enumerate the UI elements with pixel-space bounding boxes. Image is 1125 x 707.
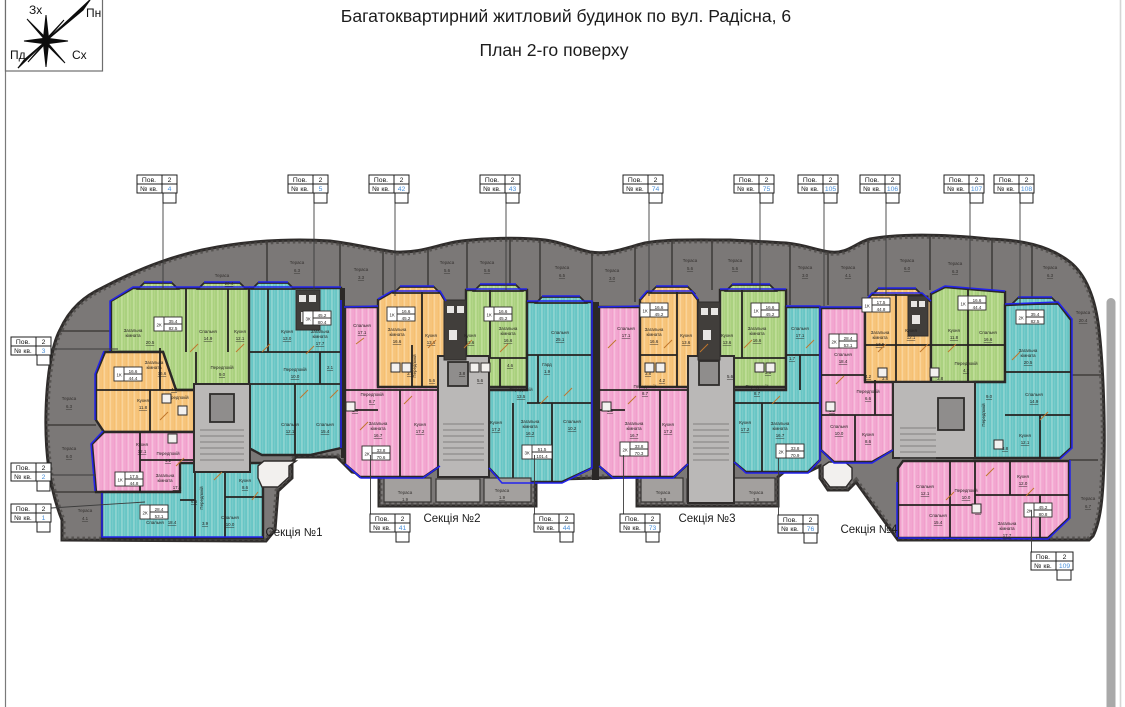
svg-text:16.2: 16.2 [526, 431, 535, 436]
svg-text:11.8: 11.8 [950, 335, 959, 340]
svg-text:8.6: 8.6 [865, 439, 872, 444]
svg-text:12.1: 12.1 [286, 429, 295, 434]
svg-text:№ кв.: № кв. [863, 186, 881, 193]
svg-text:Спальня: Спальня [563, 419, 581, 424]
svg-text:Пов.: Пов. [625, 516, 639, 523]
svg-text:кімната: кімната [389, 332, 405, 337]
svg-text:Секція №1: Секція №1 [265, 527, 322, 539]
svg-text:2К: 2К [156, 323, 162, 328]
svg-text:17.7: 17.7 [316, 341, 325, 346]
svg-text:№ кв.: № кв. [1034, 563, 1052, 570]
svg-text:Тераса: Тераса [683, 258, 698, 263]
svg-text:16.7: 16.7 [630, 433, 639, 438]
svg-text:кімната: кімната [370, 426, 386, 431]
svg-text:Тераса: Тераса [798, 265, 813, 270]
svg-text:Кухня: Кухня [948, 328, 960, 333]
svg-text:3.3: 3.3 [358, 275, 365, 280]
svg-text:2: 2 [511, 177, 515, 184]
svg-text:Спальня: Спальня [979, 330, 997, 335]
svg-text:Передпокій: Передпокій [633, 384, 657, 389]
svg-text:2: 2 [401, 516, 405, 523]
svg-text:Кухня: Кухня [281, 329, 293, 334]
svg-text:кімната: кімната [500, 331, 516, 336]
svg-text:Спальня: Спальня [353, 323, 371, 328]
svg-text:6.0: 6.0 [66, 454, 73, 459]
svg-text:109: 109 [1059, 563, 1071, 570]
svg-text:Пов.: Пов. [949, 177, 963, 184]
svg-text:кімната: кімната [312, 334, 328, 339]
svg-text:4.2: 4.2 [659, 378, 666, 383]
svg-text:80.4: 80.4 [318, 320, 327, 325]
svg-text:51.5: 51.5 [538, 447, 547, 452]
svg-text:кімната: кімната [749, 331, 765, 336]
svg-text:10.0: 10.0 [226, 522, 235, 527]
svg-text:Тераса: Тераса [1076, 310, 1091, 315]
svg-text:Тераса: Тераса [78, 508, 93, 513]
svg-text:1.9: 1.9 [402, 497, 409, 502]
svg-text:Тераса: Тераса [841, 265, 856, 270]
svg-text:1К: 1К [864, 304, 870, 309]
svg-text:№ кв.: № кв. [623, 525, 641, 532]
svg-text:16.6: 16.6 [753, 338, 762, 343]
svg-text:2: 2 [168, 177, 172, 184]
svg-text:Пов.: Пов. [539, 516, 553, 523]
svg-text:1К: 1К [389, 313, 395, 318]
svg-text:Передпокій: Передпокій [981, 403, 986, 427]
svg-text:16.6: 16.6 [402, 309, 411, 314]
svg-text:Кухня: Кухня [239, 478, 251, 483]
svg-text:16.6: 16.6 [650, 339, 659, 344]
svg-text:Пов.: Пов. [16, 465, 30, 472]
svg-text:Пн: Пн [86, 6, 101, 20]
svg-text:45.2: 45.2 [655, 312, 664, 317]
svg-text:№ кв.: № кв. [140, 186, 158, 193]
svg-text:2К: 2К [778, 450, 784, 455]
svg-text:17.5: 17.5 [877, 300, 886, 305]
svg-text:6.5: 6.5 [559, 273, 566, 278]
svg-text:Пд: Пд [10, 48, 26, 62]
svg-text:Секція №3: Секція №3 [678, 513, 735, 525]
svg-text:4.2: 4.2 [165, 458, 172, 463]
svg-text:5.6: 5.6 [477, 378, 484, 383]
svg-text:№ кв.: № кв. [14, 515, 32, 522]
svg-text:16.6: 16.6 [766, 305, 775, 310]
svg-text:кімната: кімната [157, 478, 173, 483]
svg-text:17.1: 17.1 [796, 333, 805, 338]
svg-text:Кухня: Кухня [662, 422, 674, 427]
svg-text:45.2: 45.2 [1039, 505, 1048, 510]
svg-text:№ кв.: № кв. [626, 186, 644, 193]
svg-text:42: 42 [398, 186, 406, 193]
svg-text:Передпокій: Передпокій [210, 365, 234, 370]
svg-text:Пов.: Пов. [1036, 554, 1050, 561]
svg-text:Кухня: Кухня [136, 442, 148, 447]
svg-text:28.4: 28.4 [844, 336, 853, 341]
svg-text:53.1: 53.1 [844, 343, 853, 348]
svg-text:Спальня: Спальня [830, 424, 848, 429]
svg-text:16.6: 16.6 [655, 305, 664, 310]
svg-text:Тераса: Тераса [215, 273, 230, 278]
svg-text:18.4: 18.4 [839, 359, 848, 364]
svg-text:Тераса: Тераса [749, 490, 764, 495]
svg-text:1К: 1К [486, 313, 492, 318]
svg-text:16.6: 16.6 [129, 369, 138, 374]
svg-text:3.9: 3.9 [202, 521, 209, 526]
svg-text:5.6: 5.6 [429, 378, 436, 383]
svg-text:Спальня: Спальня [199, 329, 217, 334]
svg-text:5.6: 5.6 [727, 374, 734, 379]
svg-text:кімната: кімната [626, 426, 642, 431]
svg-text:Спальня: Спальня [791, 326, 809, 331]
svg-text:Кухня: Кухня [490, 420, 502, 425]
svg-text:28.4: 28.4 [155, 507, 164, 512]
svg-text:Спальня: Спальня [281, 422, 299, 427]
svg-text:6.3: 6.3 [294, 268, 301, 273]
svg-text:№ кв.: № кв. [14, 474, 32, 481]
svg-text:20.4: 20.4 [225, 281, 234, 286]
svg-text:4: 4 [168, 186, 172, 193]
svg-text:74: 74 [652, 186, 660, 193]
svg-text:Пов.: Пов. [783, 517, 797, 524]
svg-text:108: 108 [1021, 186, 1033, 193]
svg-text:Пов.: Пов. [999, 177, 1013, 184]
svg-text:17.2: 17.2 [741, 427, 750, 432]
svg-text:6.3: 6.3 [952, 269, 959, 274]
svg-text:2: 2 [565, 516, 569, 523]
svg-text:82.5: 82.5 [169, 326, 178, 331]
svg-text:Пов.: Пов. [739, 177, 753, 184]
svg-text:15.4: 15.4 [321, 429, 330, 434]
svg-text:76: 76 [807, 526, 815, 533]
svg-text:2: 2 [891, 177, 895, 184]
svg-text:Кухня: Кухня [1017, 474, 1029, 479]
svg-text:5.6: 5.6 [687, 266, 694, 271]
svg-text:Тераса: Тераса [656, 490, 671, 495]
svg-text:Тераса: Тераса [440, 260, 455, 265]
svg-text:5.6: 5.6 [732, 266, 739, 271]
svg-text:44.4: 44.4 [973, 305, 982, 310]
svg-text:3.0: 3.0 [802, 273, 809, 278]
svg-text:11.8: 11.8 [139, 405, 148, 410]
svg-text:Кухня: Кухня [739, 420, 751, 425]
svg-text:Передпокій: Передпокій [509, 387, 533, 392]
svg-text:17.1: 17.1 [358, 330, 367, 335]
svg-text:Передпокій: Передпокій [283, 367, 307, 372]
svg-text:45.2: 45.2 [499, 316, 508, 321]
svg-text:кімната: кімната [999, 526, 1015, 531]
svg-text:Тераса: Тераса [605, 268, 620, 273]
svg-text:Пов.: Пов. [293, 177, 307, 184]
svg-text:70.3: 70.3 [635, 451, 644, 456]
svg-text:16.6: 16.6 [984, 337, 993, 342]
svg-text:6.6: 6.6 [865, 396, 872, 401]
svg-text:2: 2 [42, 339, 46, 346]
svg-text:Передпокій: Передпокій [856, 389, 880, 394]
svg-text:105: 105 [825, 186, 837, 193]
svg-text:Спальня: Спальня [316, 422, 334, 427]
svg-text:Спальня: Спальня [146, 520, 164, 525]
svg-text:5.6: 5.6 [484, 268, 491, 273]
svg-text:2: 2 [765, 177, 769, 184]
svg-text:44.4: 44.4 [129, 376, 138, 381]
svg-text:Тераса: Тераса [948, 261, 963, 266]
svg-text:1.9: 1.9 [660, 497, 667, 502]
svg-text:Сх: Сх [72, 48, 87, 62]
svg-text:13.6: 13.6 [723, 340, 732, 345]
svg-text:№ кв.: № кв. [291, 186, 309, 193]
svg-text:1К: 1К [116, 373, 122, 378]
svg-text:35.4: 35.4 [1031, 312, 1040, 317]
svg-text:Спальня: Спальня [221, 515, 239, 520]
svg-text:35.4: 35.4 [169, 319, 178, 324]
svg-text:3: 3 [42, 348, 46, 355]
svg-text:17.1: 17.1 [622, 333, 631, 338]
svg-text:Пов.: Пов. [16, 339, 30, 346]
svg-text:12.1: 12.1 [138, 449, 147, 454]
svg-text:12.0: 12.0 [1019, 481, 1028, 486]
svg-text:Спальня: Спальня [916, 484, 934, 489]
svg-text:2К: 2К [142, 511, 148, 516]
svg-text:Тераса: Тераса [480, 260, 495, 265]
svg-text:Пов.: Пов. [374, 177, 388, 184]
svg-text:Тераса: Тераса [555, 265, 570, 270]
svg-text:Пов.: Пов. [16, 506, 30, 513]
svg-text:План 2-го поверху: План 2-го поверху [479, 40, 628, 60]
svg-text:20.5: 20.5 [1024, 360, 1033, 365]
svg-text:6.7: 6.7 [1085, 504, 1092, 509]
svg-text:3.0: 3.0 [609, 276, 616, 281]
svg-text:Спальня: Спальня [617, 326, 635, 331]
svg-text:17.2: 17.2 [416, 429, 425, 434]
svg-text:20.4: 20.4 [1079, 318, 1088, 323]
svg-text:70.6: 70.6 [377, 455, 386, 460]
svg-text:Кухня: Кухня [234, 329, 246, 334]
svg-text:Секція №4: Секція №4 [840, 524, 898, 536]
svg-text:№ кв.: № кв. [537, 525, 555, 532]
svg-text:кімната: кімната [146, 365, 162, 370]
svg-text:44.8: 44.8 [877, 307, 886, 312]
svg-text:15.4: 15.4 [934, 520, 943, 525]
svg-text:4.1: 4.1 [845, 273, 852, 278]
svg-text:2: 2 [829, 177, 833, 184]
svg-text:Тераса: Тераса [728, 258, 743, 263]
svg-text:10.0: 10.0 [962, 495, 971, 500]
svg-text:16.7: 16.7 [374, 433, 383, 438]
svg-text:4.1: 4.1 [82, 516, 89, 521]
svg-text:Тераса: Тераса [1081, 496, 1096, 501]
svg-text:1К: 1К [642, 309, 648, 314]
svg-text:2К: 2К [1018, 316, 1024, 321]
svg-text:кімната: кімната [522, 424, 538, 429]
svg-text:Тераса: Тераса [900, 258, 915, 263]
svg-text:82.5: 82.5 [1031, 319, 1040, 324]
svg-text:Секція №2: Секція №2 [423, 513, 480, 525]
svg-text:5: 5 [319, 186, 323, 193]
svg-text:3.8: 3.8 [459, 371, 466, 376]
svg-text:Пов.: Пов. [485, 177, 499, 184]
svg-text:Тераса: Тераса [62, 446, 77, 451]
svg-text:Багатоквартирний житловий буди: Багатоквартирний житловий будинок по вул… [341, 6, 792, 26]
svg-text:кімната: кімната [772, 426, 788, 431]
svg-text:2К: 2К [364, 452, 370, 457]
svg-text:2: 2 [975, 177, 979, 184]
svg-text:№ кв.: № кв. [372, 186, 390, 193]
svg-text:Кухня: Кухня [680, 333, 692, 338]
svg-text:2: 2 [809, 517, 813, 524]
svg-text:33.8: 33.8 [791, 446, 800, 451]
svg-text:Зх: Зх [29, 3, 42, 17]
svg-text:2: 2 [1063, 554, 1067, 561]
svg-text:20.5: 20.5 [146, 340, 155, 345]
svg-text:16.6: 16.6 [158, 371, 167, 376]
svg-text:кімната: кімната [1020, 353, 1036, 358]
svg-text:2.1: 2.1 [327, 365, 334, 370]
svg-text:2: 2 [654, 177, 658, 184]
svg-text:25.1: 25.1 [556, 337, 565, 342]
svg-text:Тераса: Тераса [495, 488, 510, 493]
svg-text:Пов.: Пов. [375, 516, 389, 523]
svg-text:Тераса: Тераса [62, 396, 77, 401]
svg-text:Кухня: Кухня [1019, 433, 1031, 438]
svg-text:53.1: 53.1 [155, 514, 164, 519]
svg-text:Спальня: Спальня [551, 330, 569, 335]
svg-text:Гард: Гард [542, 362, 552, 367]
svg-text:Тераса: Тераса [1043, 265, 1058, 270]
svg-text:12.1: 12.1 [921, 491, 930, 496]
svg-text:Тераса: Тераса [354, 267, 369, 272]
svg-text:16.6: 16.6 [393, 339, 402, 344]
svg-text:Пов.: Пов. [142, 177, 156, 184]
svg-text:1.9: 1.9 [753, 497, 760, 502]
svg-text:13.0: 13.0 [283, 336, 292, 341]
svg-text:16.6: 16.6 [504, 338, 513, 343]
svg-text:14.9: 14.9 [204, 336, 213, 341]
svg-text:8.6: 8.6 [242, 485, 249, 490]
svg-text:Передпокій: Передпокій [199, 486, 204, 510]
svg-text:№ кв.: № кв. [947, 186, 965, 193]
svg-text:№ кв.: № кв. [737, 186, 755, 193]
svg-text:10.0: 10.0 [835, 431, 844, 436]
svg-text:43: 43 [509, 186, 517, 193]
svg-text:Тераса: Тераса [398, 490, 413, 495]
svg-text:73: 73 [649, 525, 657, 532]
svg-text:Передпокій: Передпокій [360, 392, 384, 397]
svg-text:2К: 2К [622, 448, 628, 453]
svg-text:Спальня: Спальня [929, 513, 947, 518]
svg-text:Тераса: Тераса [290, 260, 305, 265]
svg-text:14.9: 14.9 [1030, 399, 1039, 404]
svg-text:2К: 2К [831, 340, 837, 345]
svg-text:10.2: 10.2 [568, 426, 577, 431]
svg-text:3К: 3К [305, 317, 311, 322]
svg-text:1К: 1К [117, 478, 123, 483]
svg-text:8.7: 8.7 [754, 391, 761, 396]
svg-text:16.7: 16.7 [776, 433, 785, 438]
svg-text:1: 1 [42, 515, 46, 522]
svg-text:8.7: 8.7 [642, 391, 649, 396]
svg-text:2: 2 [42, 474, 46, 481]
svg-text:4.7: 4.7 [963, 368, 970, 373]
svg-text:41: 41 [399, 525, 407, 532]
svg-text:№ кв.: № кв. [14, 348, 32, 355]
svg-text:Кухня: Кухня [905, 328, 917, 333]
svg-text:6.3: 6.3 [1047, 273, 1054, 278]
svg-text:Передпокій: Передпокій [156, 451, 180, 456]
svg-text:Передпокій: Передпокій [954, 361, 978, 366]
svg-text:6.0: 6.0 [904, 266, 911, 271]
svg-text:80.8: 80.8 [1039, 512, 1048, 517]
svg-text:Спальня: Спальня [1025, 392, 1043, 397]
svg-text:45.2: 45.2 [402, 316, 411, 321]
svg-text:Спальня: Спальня [834, 352, 852, 357]
svg-text:№ кв.: № кв. [483, 186, 501, 193]
svg-text:4.2: 4.2 [865, 374, 872, 379]
svg-text:Передпокій: Передпокій [954, 488, 978, 493]
svg-text:70.9: 70.9 [791, 453, 800, 458]
svg-text:№ кв.: № кв. [997, 186, 1015, 193]
svg-text:12.1: 12.1 [1021, 440, 1030, 445]
svg-text:5.6: 5.6 [444, 268, 451, 273]
svg-text:17.2: 17.2 [664, 429, 673, 434]
svg-text:Кухня: Кухня [862, 432, 874, 437]
svg-text:4.6: 4.6 [507, 363, 514, 368]
svg-text:16.6: 16.6 [499, 309, 508, 314]
svg-text:Пов.: Пов. [803, 177, 817, 184]
svg-text:2: 2 [1025, 177, 1029, 184]
svg-text:Передпокій: Передпокій [745, 384, 769, 389]
svg-text:Кухня: Кухня [721, 333, 733, 338]
svg-text:Кухня: Кухня [464, 333, 476, 338]
svg-text:Пов.: Пов. [865, 177, 879, 184]
svg-text:106: 106 [887, 186, 899, 193]
svg-text:6.6: 6.6 [191, 499, 198, 504]
svg-text:кімната: кімната [872, 335, 888, 340]
svg-text:107: 107 [971, 186, 983, 193]
svg-text:1.9: 1.9 [499, 495, 506, 500]
svg-text:Кухня: Кухня [414, 422, 426, 427]
svg-text:44: 44 [563, 525, 571, 532]
svg-text:13.5: 13.5 [517, 394, 526, 399]
svg-text:33.8: 33.8 [635, 444, 644, 449]
svg-text:101.4: 101.4 [536, 454, 548, 459]
svg-text:10.0: 10.0 [291, 374, 300, 379]
svg-text:3К: 3К [524, 451, 530, 456]
svg-text:1К: 1К [960, 302, 966, 307]
svg-text:2: 2 [400, 177, 404, 184]
svg-text:12.1: 12.1 [236, 336, 245, 341]
svg-text:1.7: 1.7 [789, 356, 796, 361]
svg-text:2: 2 [319, 177, 323, 184]
svg-text:4.7: 4.7 [171, 387, 178, 392]
svg-text:17.7: 17.7 [1003, 533, 1012, 538]
svg-text:2: 2 [651, 516, 655, 523]
svg-text:17.5: 17.5 [173, 485, 182, 490]
svg-text:6.3: 6.3 [66, 404, 73, 409]
svg-text:44.8: 44.8 [130, 481, 139, 486]
svg-text:12.1: 12.1 [907, 335, 916, 340]
svg-text:17.2: 17.2 [492, 427, 501, 432]
svg-text:16.6: 16.6 [973, 298, 982, 303]
svg-text:№ кв.: № кв. [801, 186, 819, 193]
svg-text:№ кв.: № кв. [373, 525, 391, 532]
svg-text:9.0: 9.0 [219, 372, 226, 377]
svg-text:1.9: 1.9 [544, 369, 551, 374]
svg-text:1К: 1К [753, 309, 759, 314]
svg-text:2: 2 [42, 506, 46, 513]
svg-text:17.5: 17.5 [130, 474, 139, 479]
svg-text:45.2: 45.2 [766, 312, 775, 317]
svg-text:2: 2 [42, 465, 46, 472]
